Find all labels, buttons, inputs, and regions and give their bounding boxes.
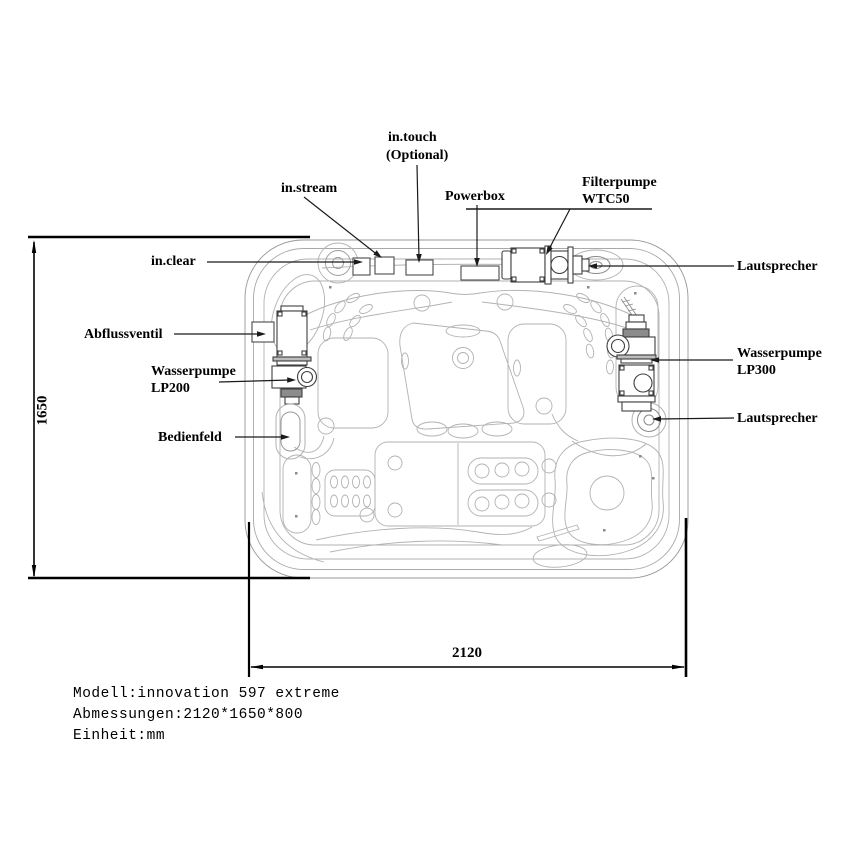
spa-technical-drawing-page: in.touch (Optional) in.stream Powerbox F… [0, 0, 850, 850]
water-pump-lp300-drawing [607, 315, 656, 411]
label-wasserpumpe-right-model: LP300 [737, 363, 776, 378]
dimension-height-value: 1650 [36, 389, 51, 433]
in-stream-box [375, 257, 394, 274]
label-in-touch: in.touch [388, 130, 437, 145]
label-in-stream: in.stream [281, 181, 337, 196]
filter-pump-drawing [502, 246, 589, 284]
title-block: Modell:innovation 597 extreme Abmessunge… [73, 684, 340, 747]
label-lautsprecher-top: Lautsprecher [737, 259, 818, 274]
water-pump-lp200-drawing [272, 306, 317, 404]
label-filterpumpe-model: WTC50 [582, 192, 629, 207]
label-lautsprecher-bottom: Lautsprecher [737, 411, 818, 426]
label-abflussventil: Abflussventil [84, 327, 163, 342]
label-in-clear: in.clear [151, 254, 196, 269]
label-bedienfeld: Bedienfeld [158, 430, 222, 445]
note-size: Abmessungen:2120*1650*800 [73, 705, 340, 726]
note-unit: Einheit:mm [73, 726, 340, 747]
reference-dots [295, 286, 655, 532]
jet-cluster-right [562, 291, 615, 374]
in-touch-box [406, 260, 433, 275]
label-powerbox: Powerbox [445, 189, 505, 204]
dimension-width-value: 2120 [439, 646, 495, 661]
drain-valve-box [252, 322, 274, 342]
label-in-touch-optional: (Optional) [386, 148, 448, 163]
powerbox-box [461, 266, 499, 280]
label-wasserpumpe-left-model: LP200 [151, 381, 190, 396]
note-model: Modell:innovation 597 extreme [73, 684, 340, 705]
label-wasserpumpe-right: Wasserpumpe [737, 346, 822, 361]
label-wasserpumpe-left: Wasserpumpe [151, 364, 236, 379]
label-filterpumpe: Filterpumpe [582, 175, 657, 190]
dimension-height [28, 237, 310, 578]
tub-interior [261, 243, 663, 570]
